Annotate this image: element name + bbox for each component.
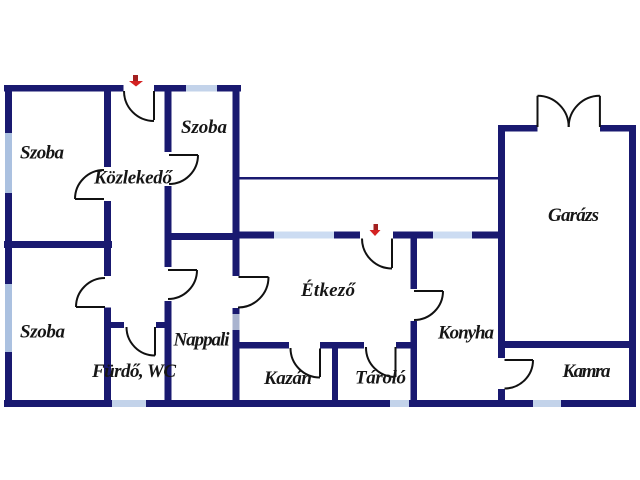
svg-text:Szoba: Szoba <box>20 143 65 164</box>
svg-text:Étkező: Étkező <box>300 279 357 301</box>
svg-text:Kamra: Kamra <box>562 361 612 382</box>
svg-text:Szoba: Szoba <box>181 117 228 138</box>
svg-text:Konyha: Konyha <box>437 323 495 344</box>
svg-text:Szoba: Szoba <box>20 322 66 343</box>
svg-text:Közlekedő: Közlekedő <box>93 168 174 189</box>
svg-text:Fürdő, WC: Fürdő, WC <box>91 361 176 382</box>
svg-text:Kazán: Kazán <box>263 368 312 389</box>
svg-text:Tároló: Tároló <box>355 368 406 389</box>
svg-text:Garázs: Garázs <box>548 205 599 226</box>
svg-text:Nappali: Nappali <box>173 330 231 351</box>
